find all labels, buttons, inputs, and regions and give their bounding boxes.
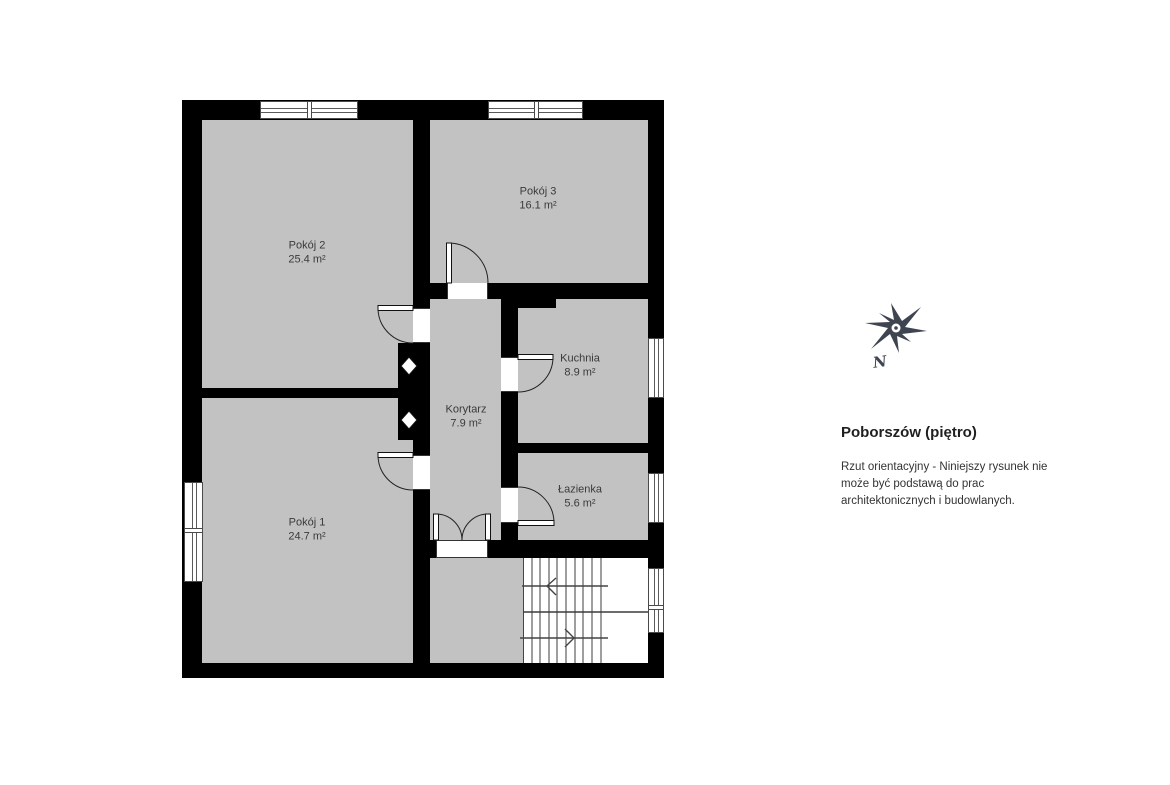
door-opening-pokoj2 <box>413 308 430 343</box>
floor-plan: Pokój 2 25.4 m² Pokój 3 16.1 m² Kuchnia … <box>0 0 1170 785</box>
room-name: Łazienka <box>558 484 602 498</box>
window-glass <box>654 474 659 522</box>
room-area: 25.4 m² <box>288 253 325 267</box>
room-area: 7.9 m² <box>446 417 487 431</box>
compass-north-label: N <box>872 352 888 372</box>
double-door-opening <box>436 540 488 558</box>
window-lazienka <box>648 473 664 523</box>
room-name: Pokój 2 <box>288 240 325 254</box>
staircase <box>523 558 648 663</box>
room-name: Pokój 1 <box>288 517 325 531</box>
disclaimer-line: Rzut orientacyjny - Niniejszy rysunek ni… <box>841 459 1047 476</box>
window-mullion <box>534 102 539 118</box>
plan-title: Poborszów (piętro) <box>841 424 977 441</box>
window-pokoj1 <box>184 482 203 582</box>
window-glass <box>654 569 659 632</box>
room-label-pokoj1: Pokój 1 24.7 m² <box>288 517 325 544</box>
room-area: 24.7 m² <box>288 530 325 544</box>
door-opening-kuchnia <box>501 357 518 392</box>
room-area: 16.1 m² <box>519 199 556 213</box>
room-area: 8.9 m² <box>560 366 600 380</box>
room-label-korytarz: Korytarz 7.9 m² <box>446 404 487 431</box>
room-name: Korytarz <box>446 404 487 418</box>
door-opening-pokoj3 <box>447 283 488 299</box>
room-label-pokoj3: Pokój 3 16.1 m² <box>519 186 556 213</box>
room-label-kuchnia: Kuchnia 8.9 m² <box>560 353 600 380</box>
window-mullion <box>649 605 663 610</box>
window-mullion <box>307 102 312 118</box>
window-glass <box>654 339 659 397</box>
disclaimer-line: może być podstawą do prac <box>841 476 1047 493</box>
window-mullion <box>185 528 202 533</box>
room-name: Kuchnia <box>560 353 600 367</box>
plan-disclaimer: Rzut orientacyjny - Niniejszy rysunek ni… <box>841 459 1047 510</box>
window-pokoj3 <box>488 101 583 119</box>
door-opening-lazienka <box>501 487 518 523</box>
window-kuchnia <box>648 338 664 398</box>
window-stairs <box>648 568 664 633</box>
room-label-pokoj2: Pokój 2 25.4 m² <box>288 240 325 267</box>
room-name: Pokój 3 <box>519 186 556 200</box>
window-pokoj2 <box>260 101 358 119</box>
wall-kitchen-bath <box>518 443 648 453</box>
disclaimer-line: architektonicznych i budowlanych. <box>841 493 1047 510</box>
compass-rose-icon <box>864 302 930 356</box>
room-area: 5.6 m² <box>558 497 602 511</box>
room-label-lazienka: Łazienka 5.6 m² <box>558 484 602 511</box>
wall-pokoj1-pokoj2 <box>202 388 413 398</box>
door-opening-pokoj1 <box>413 455 430 490</box>
